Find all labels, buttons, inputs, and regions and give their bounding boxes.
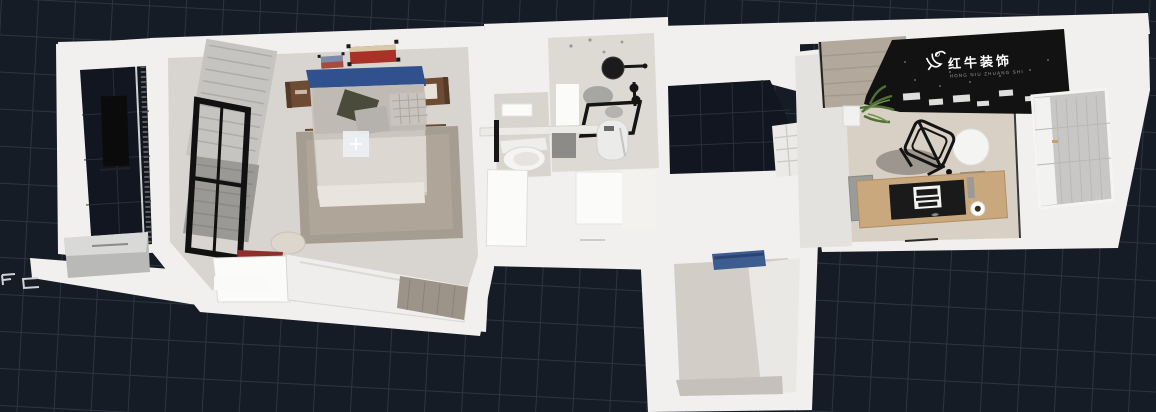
bathroom-door-panel[interactable] <box>556 84 579 126</box>
towel-bar[interactable] <box>494 120 499 162</box>
pillow-quilted <box>389 92 428 126</box>
washroom-shelf <box>502 104 532 116</box>
refrigerator[interactable] <box>1032 89 1113 208</box>
floorplan-scene: 红牛装饰 HONG NIU ZHUANG SHI <box>0 0 1156 412</box>
wall-glyph-2 <box>23 278 39 288</box>
round-side-table[interactable] <box>953 129 989 165</box>
pillow-gray <box>354 106 390 136</box>
hall-cabinet-3[interactable] <box>622 170 656 228</box>
bathroom-vanity[interactable] <box>552 133 576 158</box>
dining-table[interactable] <box>857 171 1008 228</box>
bed-foot-fold <box>317 182 425 207</box>
bed[interactable] <box>306 66 428 207</box>
hall-cabinet-1[interactable] <box>486 170 527 247</box>
floorplan-3d-viewport[interactable]: 红牛装饰 HONG NIU ZHUANG SHI <box>0 0 1156 412</box>
entry-room <box>674 250 800 396</box>
typewriter-print <box>913 185 941 209</box>
fridge-handle <box>1052 140 1058 143</box>
ottoman-pouf[interactable] <box>271 232 305 254</box>
wardrobe-drawer <box>214 276 270 292</box>
wall-glyph-1 <box>2 274 15 285</box>
tv-panel[interactable] <box>101 96 129 167</box>
planter <box>843 106 860 126</box>
bedroom <box>168 39 478 322</box>
table-tray <box>967 177 975 198</box>
